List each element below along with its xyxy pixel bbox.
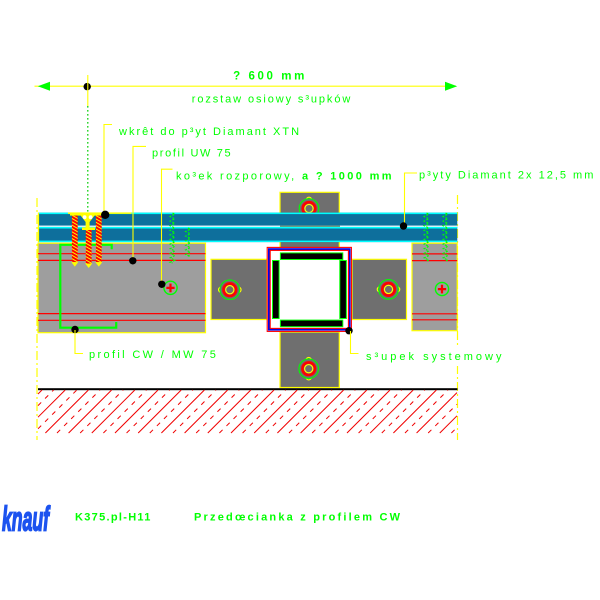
svg-text:? 600 mm: ? 600 mm	[233, 71, 307, 83]
svg-text:K375.pl-H11: K375.pl-H11	[75, 512, 152, 524]
svg-text:rozstaw osiowy s³upków: rozstaw osiowy s³upków	[192, 94, 352, 106]
svg-text:profil CW / MW 75: profil CW / MW 75	[89, 349, 218, 361]
svg-text:p³yty Diamant 2x 12,5 mm: p³yty Diamant 2x 12,5 mm	[419, 170, 595, 182]
svg-text:profil UW 75: profil UW 75	[152, 148, 232, 160]
svg-text:s³upek systemowy: s³upek systemowy	[366, 351, 504, 363]
svg-text:knauf: knauf	[2, 501, 51, 539]
svg-text:ko³ek rozporowy, a ? 1000 mm: ko³ek rozporowy, a ? 1000 mm	[176, 171, 394, 183]
svg-text:Przedœcianka z profilem CW: Przedœcianka z profilem CW	[194, 512, 402, 524]
svg-text:wkrêt do p³yt Diamant XTN: wkrêt do p³yt Diamant XTN	[118, 126, 301, 138]
